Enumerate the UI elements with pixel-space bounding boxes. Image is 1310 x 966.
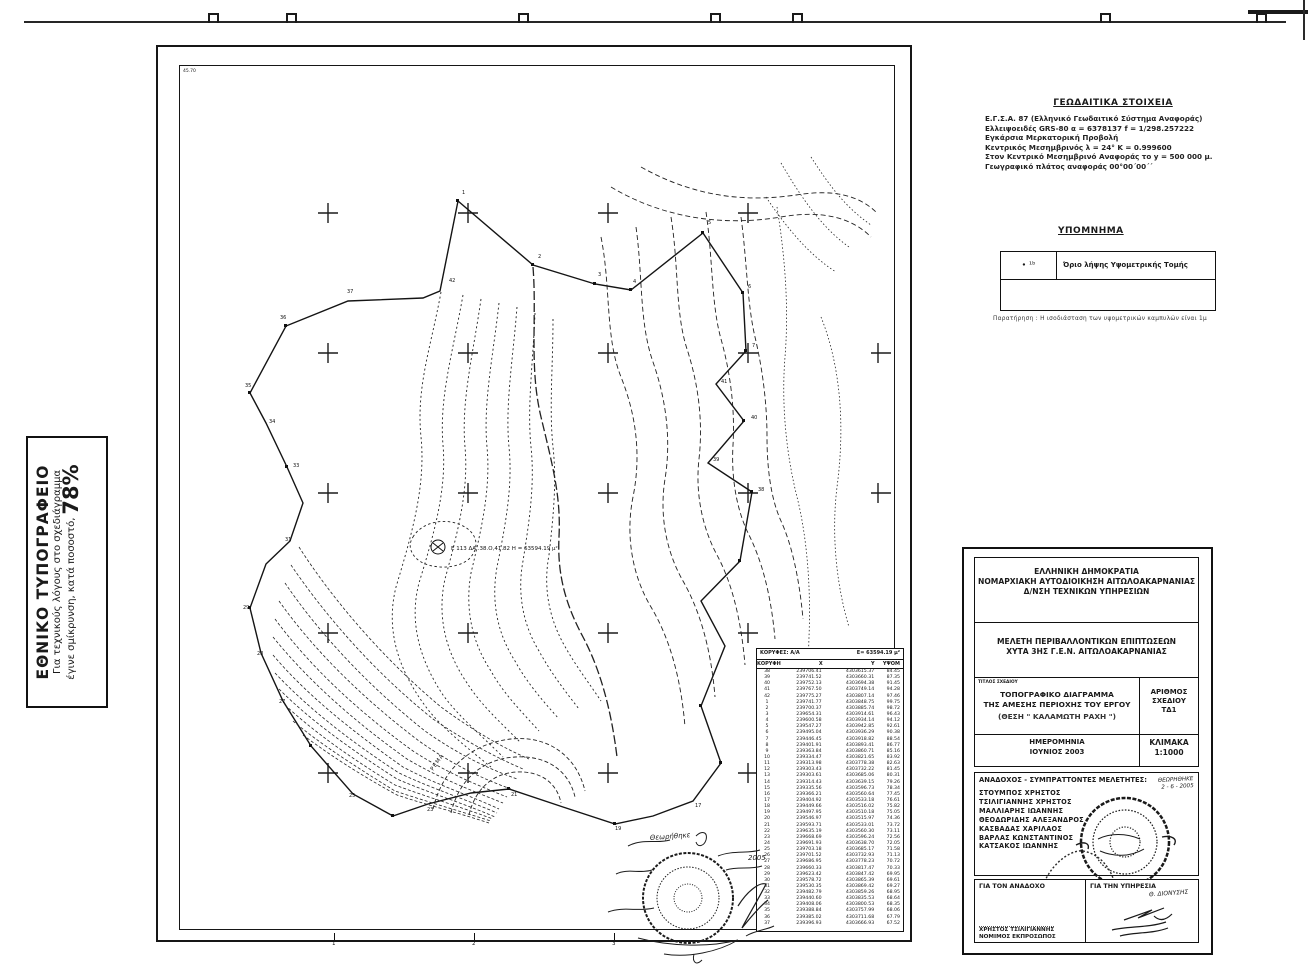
svg-text:5: 5 (708, 220, 711, 226)
drawing-info-grid: ΤΙΤΛΟΣ ΣΧΕΔΙΟΥ ΤΟΠΟΓΡΑΦΙΚΟ ΔΙΑΓΡΑΜΜΑ ΤΗΣ… (974, 677, 1199, 767)
table-title: ΚΟΡΥΦΕΣ: Α/Α (760, 650, 800, 658)
svg-text:1: 1 (462, 190, 465, 196)
scan-tick (710, 13, 721, 23)
svg-text:42: 42 (449, 278, 455, 284)
scan-tick (286, 13, 297, 23)
authority-line: Δ/ΝΣΗ ΤΕΧΝΙΚΩΝ ΥΠΗΡΕΣΙΩΝ (975, 587, 1198, 597)
printing-office-note: ΕΘΝΙΚΟ ΤΥΠΟΓΡΑΦΕΙΟ Για τεχνικούς λόγους … (34, 445, 100, 699)
legend-row: ∙ ¹ᵇ Όριο λήψης Υψομετρικής Τομής (1001, 252, 1215, 280)
svg-text:40: 40 (751, 415, 757, 421)
scan-tick (1256, 13, 1267, 23)
scale-tick (614, 933, 615, 940)
parcel-area-label: Ε 113 ΔΑ..38.Ο,41.82 Η = 63594.19 μ² (451, 545, 558, 552)
contractor-signature-cell: ΓΙΑ ΤΟΝ ΑΝΑΔΟΧΟ ΧΡΗΣΤΟΣ ΤΣΙΛΙΓΙΑΝΝΗΣ ΝΟΜ… (975, 880, 1086, 942)
svg-text:38: 38 (758, 487, 764, 493)
scale-number: 2 (472, 941, 476, 947)
survey-point-symbol (431, 540, 445, 554)
svg-text:19: 19 (615, 826, 621, 832)
svg-text:28: 28 (257, 651, 263, 657)
consultant-name: ΚΑΣΒΑΔΑΣ ΧΑΡΙΛΑΟΣ (979, 825, 1198, 834)
svg-text:4: 4 (633, 279, 636, 285)
geodetic-lines: Ε.Γ.Σ.Α. 87 (Ελληνικό Γεωδαιτικό Σύστημα… (985, 114, 1285, 172)
project-line: ΜΕΛΕΤΗ ΠΕΡΙΒΑΛΛΟΝΤΙΚΩΝ ΕΠΙΠΤΩΣΕΩΝ (975, 637, 1198, 647)
legend-label: Όριο λήψης Υψομετρικής Τομής (1057, 252, 1215, 279)
svg-text:27: 27 (279, 699, 285, 705)
svg-text:31: 31 (285, 537, 291, 543)
coordinates-table-columns: ΚΟΡΥΦΗ X Y ΥΨΟΜ (757, 660, 903, 669)
geodetic-title: ΓΕΩΔΑΙΤΙΚΑ ΣΤΟΙΧΕΙΑ (1013, 98, 1213, 108)
stream-label: ΡΕΜΑ (430, 753, 446, 772)
scan-tick (208, 13, 219, 23)
legend-symbol: ∙ ¹ᵇ (1001, 252, 1057, 279)
geodetic-line: Ε.Γ.Σ.Α. 87 (Ελληνικό Γεωδαιτικό Σύστημα… (985, 114, 1285, 124)
consultant-name: ΚΑΤΣΑΚΟΣ ΙΩΑΝΝΗΣ (979, 842, 1198, 851)
scan-tick (792, 13, 803, 23)
consultant-name: ΜΑΛΛΙΑΡΗΣ ΙΩΑΝΝΗΣ (979, 807, 1198, 816)
reduction-percent: 78% (59, 464, 83, 517)
signatures-section: ΓΙΑ ΤΟΝ ΑΝΑΔΟΧΟ ΧΡΗΣΤΟΣ ΤΣΙΛΙΓΙΑΝΝΗΣ ΝΟΜ… (974, 879, 1199, 943)
printing-office-title: ΕΘΝΙΚΟ ΤΥΠΟΓΡΑΦΕΙΟ (34, 445, 52, 699)
scale-cell: ΚΛΙΜΑΚΑ 1:1000 (1140, 735, 1198, 766)
authority-section: ΕΛΛΗΝΙΚΗ ΔΗΜΟΚΡΑΤΙΑΝΟΜΑΡΧΙΑΚΗ ΑΥΤΟΔΙΟΙΚΗ… (974, 557, 1199, 626)
svg-text:23: 23 (427, 807, 433, 813)
drawing-title-label: ΤΙΤΛΟΣ ΣΧΕΔΙΟΥ (978, 680, 1018, 685)
svg-text:36: 36 (280, 315, 286, 321)
scan-tick (518, 13, 529, 23)
scale-value: 1:1000 (1140, 748, 1198, 758)
geodetic-line: Στον Κεντρικό Μεσημβρινό Αναφοράς το y =… (985, 152, 1285, 162)
scanned-topographic-drawing: { "print_note": { "title": "ΕΘΝΙΚΟ ΤΥΠΟΓ… (0, 0, 1310, 966)
contractor-name: ΧΡΗΣΤΟΣ ΤΣΙΛΙΓΙΑΝΝΗΣ (979, 926, 1054, 933)
consultants-section: ΑΝΑΔΟΧΟΣ - ΣΥΜΠΡΑΤΤΟΝΤΕΣ ΜΕΛΕΤΗΤΕΣ: ΘΕΩΡ… (974, 772, 1199, 876)
geodetic-line: Κεντρικός Μεσημβρινός λ = 24° Κ = 0.9996… (985, 143, 1285, 153)
authority-line: ΕΛΛΗΝΙΚΗ ΔΗΜΟΚΡΑΤΙΑ (975, 567, 1198, 577)
service-signature (1094, 898, 1194, 940)
svg-text:2: 2 (538, 254, 541, 260)
drawing-number-value: ΤΔ1 (1140, 706, 1198, 715)
svg-text:7: 7 (752, 343, 755, 349)
geodetic-line: Ελλειψοειδές GRS-80 α = 6378137 f = 1/29… (985, 124, 1285, 134)
date-value: ΙΟΥΝΙΟΣ 2003 (975, 748, 1139, 758)
scan-tick (1100, 13, 1111, 23)
svg-text:29: 29 (243, 605, 249, 611)
svg-text:39: 39 (713, 457, 719, 463)
approved-script: ΘΕΩΡΗΘΗΚΕ 2 - 6 - 2005 (1158, 776, 1194, 792)
drawing-number-cell: ΑΡΙΘΜΟΣ ΣΧΕΔΙΟΥ ΤΔ1 (1140, 678, 1198, 735)
geodetic-line: Γεωγραφικό πλάτος αναφοράς 00°00΄00΄΄ (985, 162, 1285, 172)
scale-number: 3 (612, 941, 616, 947)
svg-text:34: 34 (269, 419, 275, 425)
date-cell: ΗΜΕΡΟΜΗΝΙΑ ΙΟΥΝΙΟΣ 2003 (975, 735, 1140, 766)
project-line: ΧΥΤΑ 3ΗΣ Γ.Ε.Ν. ΑΙΤΩΛΟΑΚΑΡΝΑΝΙΑΣ (975, 647, 1198, 657)
consultant-name: ΤΣΙΛΙΓΙΑΝΝΗΣ ΧΡΗΣΤΟΣ (979, 798, 1198, 807)
geodetic-line: Εγκάρσια Μερκατορική Προβολή (985, 133, 1285, 143)
svg-text:33: 33 (293, 463, 299, 469)
svg-text:3: 3 (598, 272, 601, 278)
contractor-role: ΝΟΜΙΜΟΣ ΕΚΠΡΟΣΩΠΟΣ (979, 934, 1056, 940)
printing-office-note-box: ΕΘΝΙΚΟ ΤΥΠΟΓΡΑΦΕΙΟ Για τεχνικούς λόγους … (26, 436, 108, 708)
coordinates-table-body: 38 239706.41 4303615.37 84.45 39 239741.… (757, 669, 903, 927)
table-row: 37 239396.93 4303666.93 67.52 (757, 921, 903, 927)
scale-tick (474, 933, 475, 940)
authority-line: ΝΟΜΑΡΧΙΑΚΗ ΑΥΤΟΔΙΟΙΚΗΣΗ ΑΙΤΩΛΟΑΚΑΡΝΑΝΙΑΣ (975, 577, 1198, 587)
svg-text:6: 6 (748, 284, 751, 290)
for-contractor-label: ΓΙΑ ΤΟΝ ΑΝΑΔΟΧΟ (975, 880, 1085, 890)
parcel-boundary (248, 199, 753, 825)
svg-text:25: 25 (349, 793, 355, 799)
scale-number: 1 (332, 941, 336, 947)
consultant-names: ΣΤΟΥΜΠΟΣ ΧΡΗΣΤΟΣΤΣΙΛΙΓΙΑΝΝΗΣ ΧΡΗΣΤΟΣΜΑΛΛ… (975, 784, 1198, 851)
drawing-title-cell: ΤΙΤΛΟΣ ΣΧΕΔΙΟΥ ΤΟΠΟΓΡΑΦΙΚΟ ΔΙΑΓΡΑΜΜΑ ΤΗΣ… (975, 678, 1140, 735)
title-block: ΕΛΛΗΝΙΚΗ ΔΗΜΟΚΡΑΤΙΑΝΟΜΑΡΧΙΑΚΗ ΑΥΤΟΔΙΟΙΚΗ… (962, 547, 1213, 955)
consultant-name: ΘΕΟΔΩΡΙΔΗΣ ΑΛΕΞΑΝΔΡΟΣ (979, 816, 1198, 825)
table-area-value: Ε= 63594.19 μ² (857, 650, 900, 658)
svg-text:37: 37 (347, 289, 353, 295)
consultant-name: ΒΑΡΛΑΣ ΚΩΝΣΤΑΝΤΙΝΟΣ (979, 834, 1198, 843)
legend-table: ∙ ¹ᵇ Όριο λήψης Υψομετρικής Τομής (1000, 251, 1216, 311)
svg-text:17: 17 (695, 803, 701, 809)
legend-title: ΥΠΟΜΝΗΜΑ (1058, 226, 1124, 236)
service-signature-cell: ΓΙΑ ΤΗΝ ΥΠΗΡΕΣΙΑ Θ. ΔΙΟΝΥΣΗΣ (1086, 880, 1198, 942)
coordinates-table: ΚΟΡΥΦΕΣ: Α/Α Ε= 63594.19 μ² ΚΟΡΥΦΗ X Y Υ… (756, 648, 904, 932)
svg-text:41: 41 (721, 379, 727, 385)
scale-tick (334, 933, 335, 940)
coordinates-table-header: ΚΟΡΥΦΕΣ: Α/Α Ε= 63594.19 μ² (757, 649, 903, 660)
scan-right-edge-line (1303, 0, 1305, 40)
svg-text:35: 35 (245, 383, 251, 389)
legend-note: Παρατήρηση : Η ισοδιάσταση των υψομετρικ… (993, 316, 1207, 322)
svg-text:21: 21 (511, 792, 517, 798)
location-line: (ΘΕΣΗ " ΚΑΛΑΜΩΤΗ ΡΑΧΗ ") (975, 712, 1139, 722)
printing-office-line2: έγινε σμίκρυνση, κατά ποσοστό,78% (65, 445, 79, 699)
geodetic-data-block: ΓΕΩΔΑΙΤΙΚΑ ΣΤΟΙΧΕΙΑ Ε.Γ.Σ.Α. 87 (Ελληνικ… (985, 98, 1285, 172)
service-script: Θ. ΔΙΟΝΥΣΗΣ (1148, 889, 1188, 899)
